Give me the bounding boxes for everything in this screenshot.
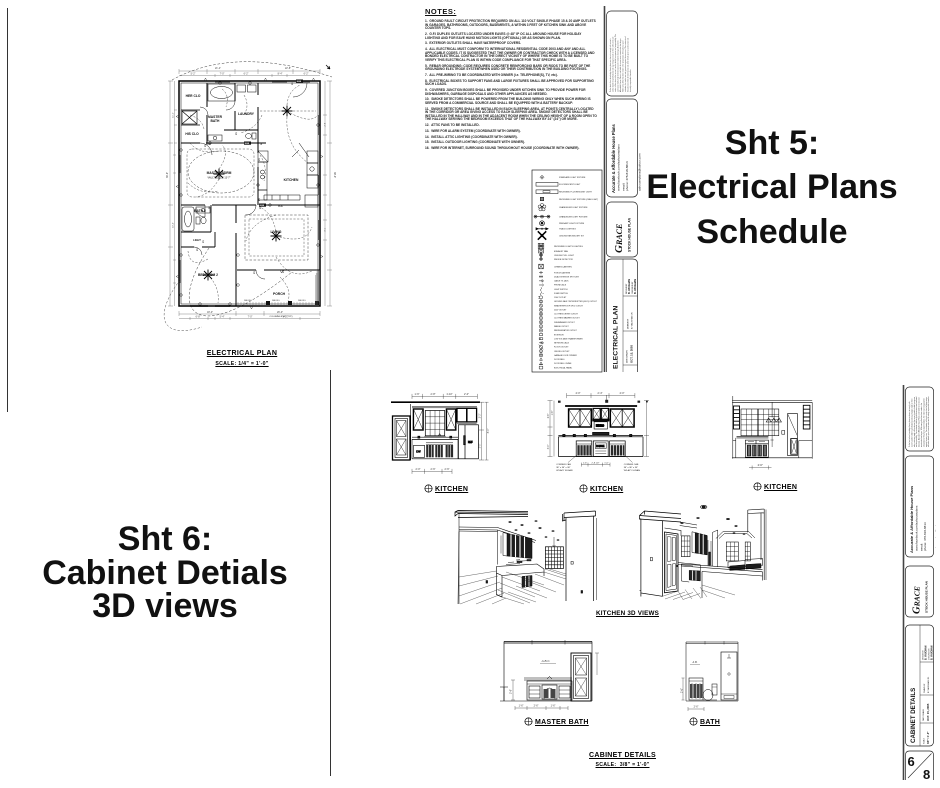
svg-text:CLG: CLG — [278, 206, 283, 208]
svg-text:3'-0": 3'-0" — [548, 445, 550, 450]
svg-text:A.B.: A.B. — [692, 660, 698, 664]
svg-text:18'-0": 18'-0" — [207, 311, 213, 314]
svg-text:PENDANT LIGHT FIXTURE: PENDANT LIGHT FIXTURE — [559, 222, 585, 225]
svg-text:CORNER CAB: CORNER CAB — [624, 463, 639, 466]
svg-text:36" x 36" x 36": 36" x 36" x 36" — [624, 467, 638, 469]
svg-text:S: S — [253, 271, 256, 275]
svg-text:CLOTHES DRYER OUTLET: CLOTHES DRYER OUTLET — [554, 314, 579, 316]
svg-text:3-WAY SWITCH: 3-WAY SWITCH — [554, 292, 568, 295]
svg-text:S: S — [291, 82, 294, 86]
svg-text:LIVING: LIVING — [271, 230, 282, 234]
svg-text:110V OUTLET: 110V OUTLET — [554, 297, 567, 299]
svg-text:www.facebook.com/aahouseplans: www.facebook.com/aahouseplans — [617, 144, 621, 191]
svg-text:LIGHT SWITCH: LIGHT SWITCH — [554, 289, 568, 291]
svg-text:2'-3": 2'-3" — [480, 414, 482, 419]
svg-text:DRAWN BY: DRAWN BY — [627, 318, 630, 329]
svg-text:RAILING: RAILING — [272, 299, 280, 302]
svg-text:CEILING PULL LIGHT: CEILING PULL LIGHT — [554, 255, 575, 257]
svg-text:HIS CLO: HIS CLO — [185, 132, 199, 136]
svg-text:Accurate & Affordable House Pl: Accurate & Affordable House Plans — [909, 485, 914, 553]
svg-text:phone: 478-818-8813: phone: 478-818-8813 — [625, 161, 629, 191]
svg-text:10'-4": 10'-4" — [173, 222, 175, 228]
svg-text:CHANDELIER LIGHT FIXTURE: CHANDELIER LIGHT FIXTURE — [559, 206, 588, 209]
svg-text:B. VAUGHAN: B. VAUGHAN — [925, 645, 928, 660]
svg-text:2'-6": 2'-6" — [548, 414, 550, 419]
svg-text:DESIGN BY: DESIGN BY — [923, 649, 925, 660]
svg-text:DUAL EXTERIOR SPOTLITE: DUAL EXTERIOR SPOTLITE — [554, 275, 580, 278]
svg-text:DRAWN BY: DRAWN BY — [923, 683, 926, 693]
svg-text:2'-6": 2'-6" — [431, 468, 436, 471]
svg-text:HER CLO: HER CLO — [186, 94, 201, 98]
svg-text:1'-6": 1'-6" — [604, 463, 609, 465]
svg-text:22'-8": 22'-8" — [285, 67, 291, 70]
svg-text:7'-0": 7'-0" — [248, 316, 253, 319]
svg-text:STOCK HOUSE PLAN: STOCK HOUSE PLAN — [925, 580, 929, 613]
svg-text:B. VAUGHAN: B. VAUGHAN — [628, 279, 631, 294]
svg-text:8'-4": 8'-4" — [278, 73, 283, 76]
svg-text:GRACE: GRACE — [912, 586, 923, 614]
svg-text:CABLE TV JACK: CABLE TV JACK — [554, 280, 569, 283]
svg-text:2'-6": 2'-6" — [509, 689, 513, 694]
svg-text:2'-6": 2'-6" — [445, 468, 450, 471]
svg-text:S: S — [258, 158, 261, 162]
svg-text:SCALE: SCALE — [923, 737, 926, 744]
svg-text:CEILING OUTLET: CEILING OUTLET — [554, 351, 570, 353]
svg-text:STOCK HOUSE PLAN: STOCK HOUSE PLAN — [628, 217, 632, 252]
svg-text:6'-2": 6'-2" — [244, 73, 249, 76]
svg-text:1'-10": 1'-10" — [446, 393, 452, 396]
svg-text:FLOOR OUTLET: FLOOR OUTLET — [554, 347, 569, 349]
svg-text:aahouseplans@yahoo.com: aahouseplans@yahoo.com — [638, 153, 642, 191]
svg-text:3'-0": 3'-0" — [480, 444, 482, 449]
svg-text:STANDARD LIGHT FIXTURE: STANDARD LIGHT FIXTURE — [559, 176, 586, 179]
svg-text:TRACK LIGHTING: TRACK LIGHTING — [559, 228, 576, 231]
svg-text:B. VAUGHAN: B. VAUGHAN — [931, 645, 934, 660]
svg-text:2'-0": 2'-0" — [464, 393, 469, 396]
svg-text:2'-4": 2'-4" — [598, 392, 603, 395]
svg-text:7'-0": 7'-0" — [220, 73, 225, 76]
svg-text:B. VAUGHAN: B. VAUGHAN — [634, 279, 637, 294]
svg-text:RAILING: RAILING — [298, 299, 306, 302]
svg-text:4'-0": 4'-0" — [620, 392, 625, 395]
svg-text:26'-0": 26'-0" — [277, 311, 283, 314]
svg-text:2'-6": 2'-6" — [681, 688, 684, 693]
svg-text:S: S — [235, 132, 238, 136]
svg-text:DOOR BELL CHIME: DOOR BELL CHIME — [554, 363, 572, 365]
svg-text:BATH 2: BATH 2 — [194, 209, 206, 213]
svg-text:GROUND FAULT INTERRUPTER (GFCI: GROUND FAULT INTERRUPTER (GFCI) OUTLET — [554, 300, 598, 303]
svg-text:CHECKED BY: CHECKED BY — [929, 648, 931, 660]
svg-text:REFRIGERATOR OUTLET: REFRIGERATOR OUTLET — [554, 329, 578, 332]
svg-text:OCT. 15, 2005: OCT. 15, 2005 — [926, 703, 930, 721]
svg-text:CLOTHES WASHER OUTLET: CLOTHES WASHER OUTLET — [554, 317, 581, 320]
svg-text:phone: 478-818-8813: phone: 478-818-8813 — [923, 522, 927, 551]
svg-text:9'-2": 9'-2" — [283, 316, 288, 319]
svg-text:NETWORK JACK: NETWORK JACK — [554, 342, 570, 345]
svg-text:220V OUTLET: 220V OUTLET — [554, 309, 567, 311]
svg-text:REF: REF — [468, 442, 473, 444]
svg-text:ELECTRICAL PLAN: ELECTRICAL PLAN — [613, 306, 620, 369]
svg-text:COLUMNS 8"x8" (TYP): COLUMNS 8"x8" (TYP) — [270, 316, 293, 318]
svg-text:LAUNDRY: LAUNDRY — [238, 112, 255, 116]
svg-text:1'-6": 1'-6" — [583, 463, 588, 465]
svg-text:EXTERIOR: EXTERIOR — [554, 334, 564, 336]
svg-text:8'-0": 8'-0" — [488, 429, 490, 434]
svg-text:VAULTED CLG 13'-7": VAULTED CLG 13'-7" — [207, 177, 230, 180]
svg-text:7'-6": 7'-6" — [323, 228, 325, 233]
svg-text:8: 8 — [923, 767, 930, 780]
svg-text:2'-0": 2'-0" — [416, 468, 421, 471]
svg-text:2'-8 1/2": 2'-8 1/2" — [591, 463, 599, 465]
svg-text:RANGE: RANGE — [596, 445, 605, 448]
svg-text:RECESSED FLUORESCENT LIGHT: RECESSED FLUORESCENT LIGHT — [559, 192, 593, 194]
svg-text:Accurate & Affordable House Pl: Accurate & Affordable House Plans — [611, 124, 616, 193]
svg-text:LOW VOLTAGE TRANSFORMER: LOW VOLTAGE TRANSFORMER — [554, 337, 583, 340]
svg-text:MICRO: MICRO — [596, 425, 604, 428]
svg-text:GRACE: GRACE — [613, 224, 625, 253]
svg-text:6'-2": 6'-2" — [304, 73, 309, 76]
svg-text:2'-6": 2'-6" — [694, 706, 699, 709]
svg-text:FLUORESCENT LIGHT: FLUORESCENT LIGHT — [559, 184, 581, 186]
svg-text:CHIMES LANTERN: CHIMES LANTERN — [554, 265, 572, 268]
svg-text:DATE DRAWN: DATE DRAWN — [626, 350, 629, 363]
svg-text:LIGHT: LIGHT — [193, 238, 201, 242]
svg-text:11'-2": 11'-2" — [173, 112, 175, 118]
svg-text:RECESSED LIGHT FIXTURE (CAN LI: RECESSED LIGHT FIXTURE (CAN LIGHT) — [559, 198, 598, 201]
svg-text:S: S — [202, 240, 205, 244]
svg-text:CABINET DETAILS: CABINET DETAILS — [910, 688, 917, 743]
svg-text:1'-6": 1'-6" — [551, 705, 556, 708]
svg-text:DW: DW — [416, 450, 421, 454]
svg-text:GARAGE DOOR OPENER: GARAGE DOOR OPENER — [554, 354, 577, 357]
svg-text:8'-2": 8'-2" — [323, 123, 325, 128]
svg-text:6'-8": 6'-8" — [196, 316, 201, 319]
svg-text:S: S — [282, 270, 285, 274]
svg-text:DISHWASHER OUTLET: DISHWASHER OUTLET — [554, 321, 576, 324]
svg-text:36" x 36" x 36": 36" x 36" x 36" — [556, 467, 570, 469]
svg-text:CORNER CAB: CORNER CAB — [556, 463, 571, 466]
svg-text:SMOKE DETECTOR: SMOKE DETECTOR — [554, 259, 573, 261]
svg-text:EXHAUST FAN: EXHAUST FAN — [554, 250, 568, 253]
svg-text:ELECTRICAL PANEL: ELECTRICAL PANEL — [554, 366, 572, 369]
svg-text:W/LAZY SUSAN: W/LAZY SUSAN — [556, 469, 573, 472]
svg-text:CEILING FAN W/LIGHT KIT: CEILING FAN W/LIGHT KIT — [559, 234, 585, 237]
svg-text:BATH: BATH — [211, 119, 221, 123]
svg-text:www.facebook.com/aahouseplans: www.facebook.com/aahouseplans — [915, 505, 919, 551]
svg-text:WEATHERPROOF GFCI OUTLET: WEATHERPROOF GFCI OUTLET — [554, 304, 584, 307]
svg-text:A.B.C.: A.B.C. — [541, 659, 551, 663]
svg-text:38'-6": 38'-6" — [333, 172, 336, 178]
svg-text:4'-0": 4'-0" — [576, 392, 581, 395]
svg-text:RANGE OUTLET: RANGE OUTLET — [554, 325, 570, 328]
svg-text:aahouseplans@yahoo.com: aahouseplans@yahoo.com — [935, 514, 937, 551]
svg-text:3/8" = 1'-0": 3/8" = 1'-0" — [927, 732, 930, 744]
svg-text:RAILING: RAILING — [244, 299, 252, 302]
svg-text:B. VAUGHAN JR.: B. VAUGHAN JR. — [631, 311, 634, 329]
svg-text:B. VAUGHAN JR.: B. VAUGHAN JR. — [927, 676, 930, 693]
svg-text:PORCH LANTERN: PORCH LANTERN — [554, 271, 571, 274]
svg-text:CHANDELIER LIGHT FIXTURE: CHANDELIER LIGHT FIXTURE — [559, 215, 588, 218]
svg-text:DOOR BELL: DOOR BELL — [554, 359, 565, 361]
svg-text:PORCH: PORCH — [273, 292, 286, 296]
svg-text:5'-2": 5'-2" — [191, 73, 196, 76]
svg-text:2'-6": 2'-6" — [758, 463, 763, 467]
svg-text:PHONE JACK: PHONE JACK — [554, 284, 567, 287]
svg-text:1'-6": 1'-6" — [415, 393, 420, 396]
svg-text:1'-6": 1'-6" — [552, 411, 554, 416]
svg-text:RECESSED LIGHTS LIGHTING: RECESSED LIGHTS LIGHTING — [554, 246, 583, 248]
svg-text:38'-6": 38'-6" — [166, 172, 169, 178]
svg-text:BEDROOM 2: BEDROOM 2 — [198, 273, 218, 277]
svg-text:MASTER BDRM: MASTER BDRM — [207, 171, 232, 175]
svg-text:1112: 1112 — [206, 144, 211, 146]
svg-text:2'-6": 2'-6" — [534, 705, 539, 708]
svg-text:DATE DRAWN: DATE DRAWN — [922, 708, 925, 721]
svg-text:5'-4": 5'-4" — [220, 316, 225, 319]
svg-text:1'-6": 1'-6" — [519, 705, 524, 708]
svg-text:21'-4": 21'-4" — [215, 67, 221, 70]
svg-text:OCT. 15, 2005: OCT. 15, 2005 — [630, 345, 634, 363]
svg-text:KITCHEN: KITCHEN — [284, 178, 299, 182]
svg-text:6: 6 — [908, 754, 915, 769]
svg-text:2'-8": 2'-8" — [431, 393, 436, 396]
svg-text:W/LAZY SUSAN: W/LAZY SUSAN — [624, 469, 641, 472]
